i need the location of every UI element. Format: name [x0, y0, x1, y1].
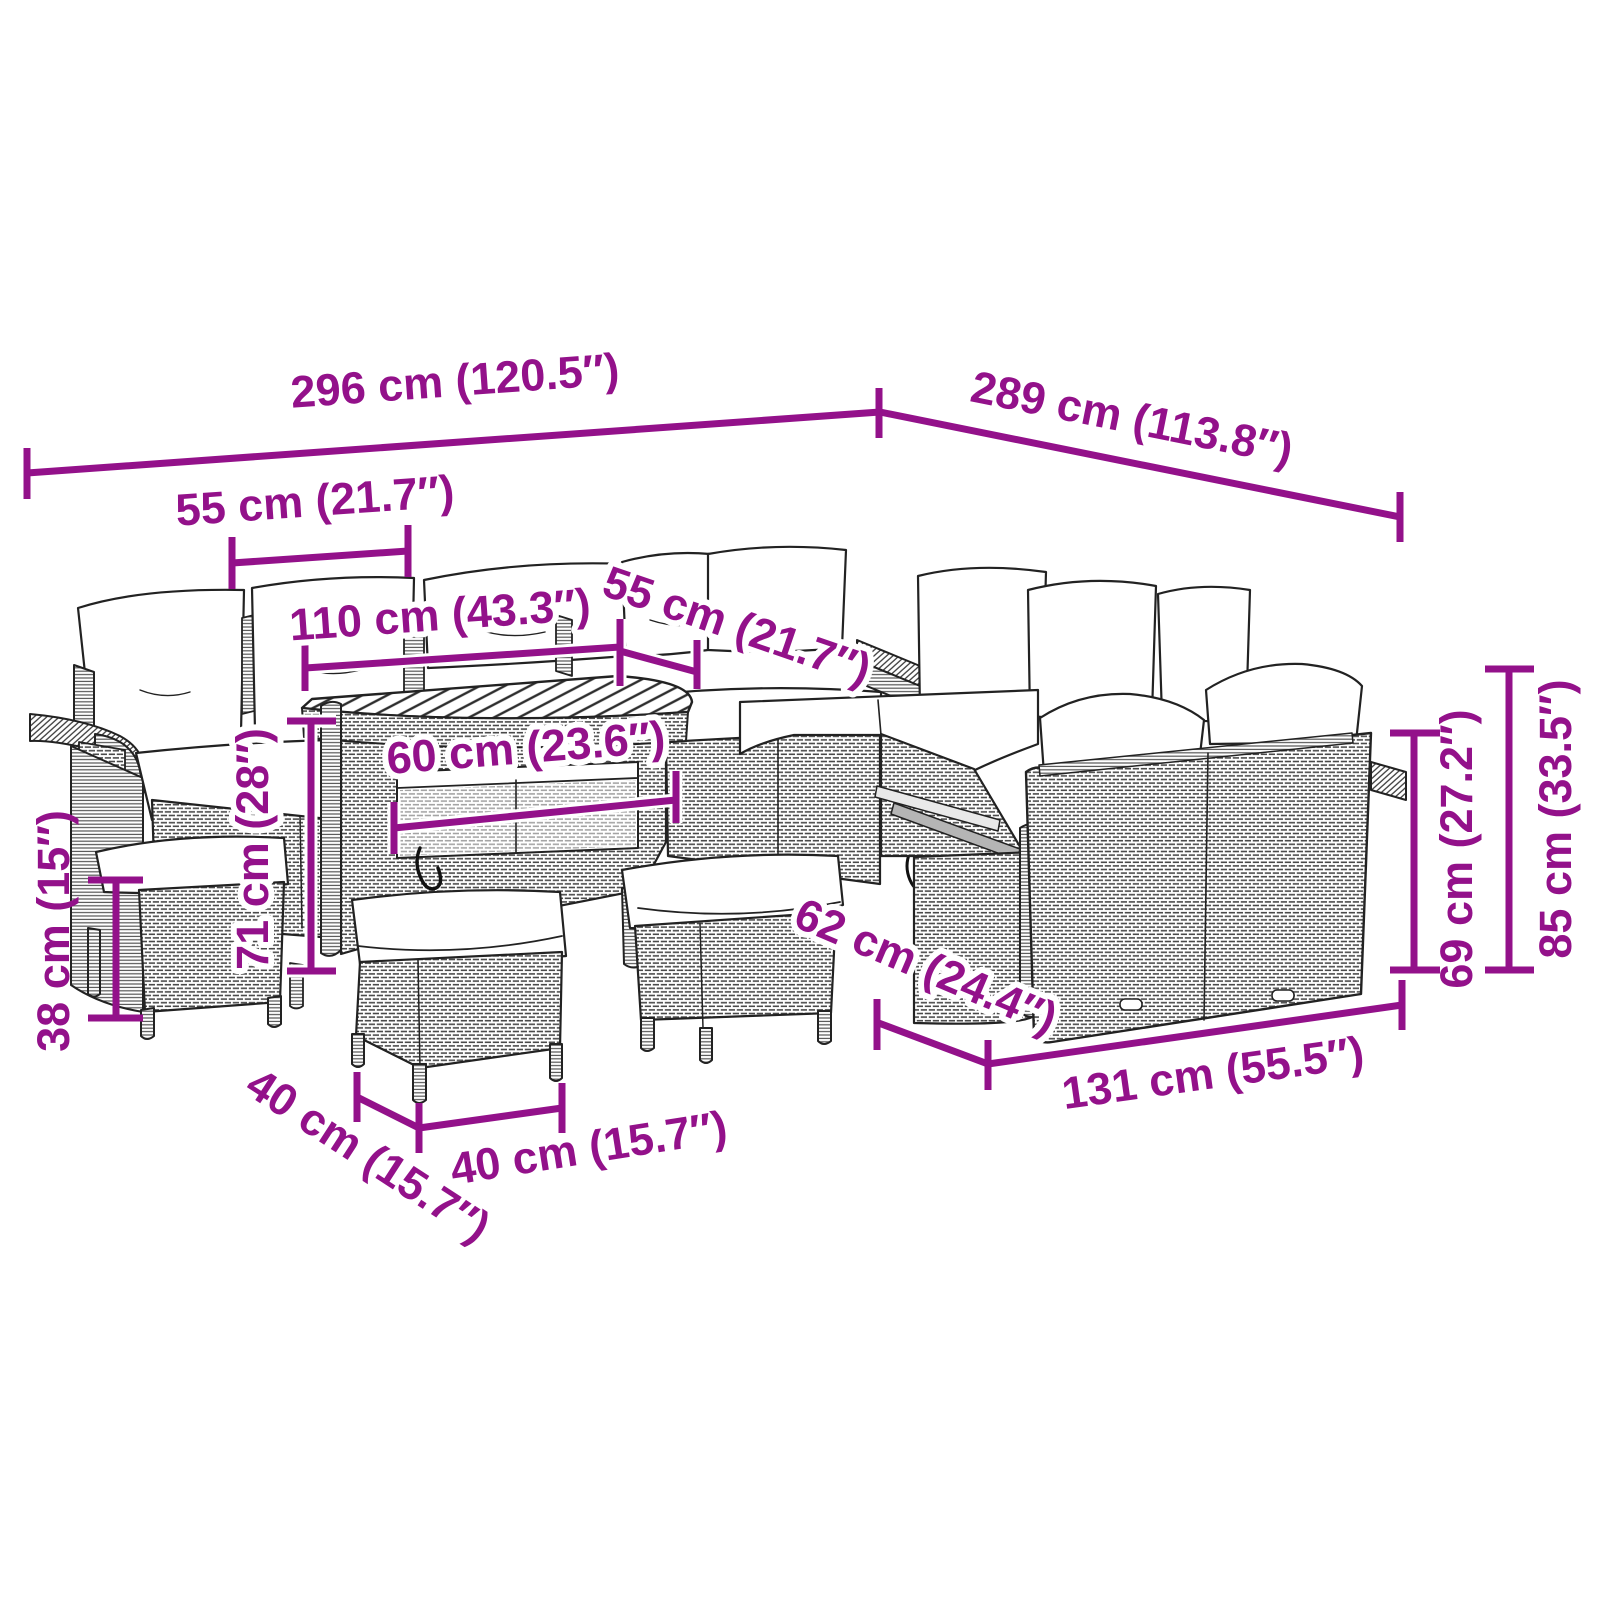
svg-text:85 cm (33.5″): 85 cm (33.5″): [1530, 679, 1581, 958]
svg-text:71 cm (28″): 71 cm (28″): [227, 728, 278, 970]
svg-text:38 cm (15″): 38 cm (15″): [28, 810, 79, 1052]
svg-text:69 cm (27.2″): 69 cm (27.2″): [1431, 709, 1482, 988]
